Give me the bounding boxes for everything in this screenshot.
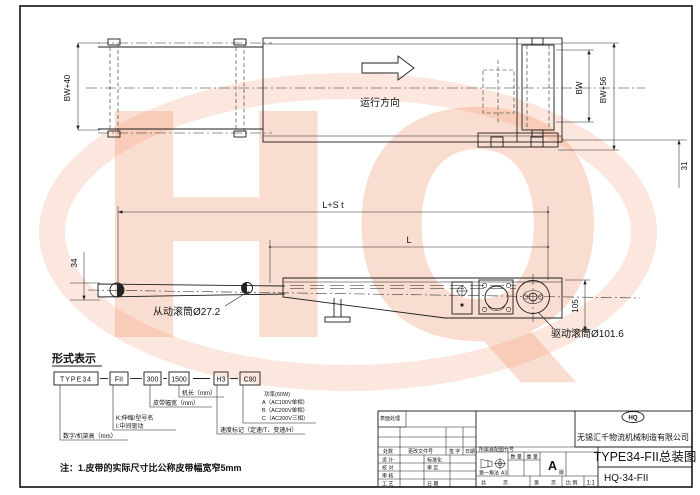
sig-row1-r: 审 定: [427, 465, 438, 472]
sig-row3-r: 日 期: [427, 482, 438, 488]
first-angle-projection-icon: [481, 458, 506, 469]
dim-label-bw56: BW+56: [599, 76, 608, 103]
sig-row0-r: 标准化: [427, 457, 442, 464]
sig-row2-l: 审 核: [382, 473, 393, 480]
header-col-1: 更改文件号: [408, 448, 433, 455]
scale-label: 比 例: [566, 480, 577, 487]
label-power-a: A（AC100V单相）: [262, 398, 308, 406]
hq-watermark: HQ: [52, 50, 644, 411]
type-box-5: C90: [244, 377, 257, 384]
revision-letter: A: [548, 459, 557, 473]
sig-row1-l: 校 对: [382, 465, 393, 472]
label-power: 功率(60W): [264, 390, 290, 398]
header-col-3: 日期: [465, 449, 475, 455]
header-col-0: 处数: [383, 448, 393, 455]
type-heading: 形式表示: [52, 351, 96, 365]
note-text: 注：1.皮带的实际尺寸比公称皮带幅宽窄5mm: [60, 462, 242, 473]
header-col-2: 签 字: [449, 448, 460, 455]
drawing-number: HQ-34-FII: [604, 473, 648, 484]
dim-label-31: 31: [680, 161, 689, 170]
type-box-3: 1500: [171, 377, 187, 384]
label-frame-height: 数字/机架高（mm）: [63, 432, 117, 440]
projection-label: 第一角法: [479, 470, 499, 477]
sheet-size-label: A3: [501, 471, 507, 477]
dim-label-105: 105: [571, 299, 580, 313]
drawing-title: TYPE34-FII总装图: [594, 450, 697, 464]
company-logo-icon: HQ: [622, 412, 644, 423]
type-box-1: FII: [115, 377, 123, 384]
driven-roller-label: 从动滚筒Ø27.2: [153, 305, 221, 318]
quantity-label: 数 量: [511, 454, 522, 461]
watermark-text: HQ: [87, 50, 610, 411]
label-belt-width: 皮带幅宽（mm）: [153, 399, 199, 407]
drive-roller-label: 驱动滚筒Ø101.6: [551, 327, 624, 340]
label-power-c: C（AC200V三相）: [262, 414, 308, 422]
total-label: 共: [481, 480, 486, 487]
sig-row3-l: 工 艺: [382, 482, 393, 488]
label-k-option: K:伸缩/型号名: [116, 414, 153, 422]
dim-label-bw: BW: [575, 81, 584, 94]
type-box-4: H3: [217, 377, 226, 384]
cad-drawing: HQ: [0, 0, 700, 495]
dim-label-34: 34: [70, 258, 79, 267]
label-i-option: I:中间驱动: [116, 422, 143, 430]
dim-label-l: L: [406, 235, 411, 245]
type-box-2: 300: [147, 377, 159, 384]
page-label: 页: [503, 481, 508, 487]
logo-text: HQ: [629, 416, 638, 422]
page-label2: 页: [551, 481, 556, 487]
dim-label-bw40: BW+40: [63, 74, 72, 101]
label-speed-mark: 速度标记（定速/T、变速/H）: [220, 426, 297, 434]
sig-row0-l: 设 计: [382, 457, 393, 464]
direction-label: 运行方向: [360, 96, 400, 109]
revision-suffix: 版: [559, 469, 564, 476]
belongs-code-label: 所属装配图代号: [479, 446, 514, 453]
weight-label: 重 量: [527, 454, 538, 461]
no-label: 第: [534, 480, 539, 487]
label-machine-length: 机长（mm）: [182, 389, 216, 397]
dim-label-lst: L+S t: [322, 200, 344, 210]
type-box-0: TYPE34: [60, 377, 92, 384]
drawing-sheet: HQ: [0, 0, 700, 495]
scale-value: 1:1: [587, 481, 596, 487]
label-power-b: B（AC200V单相）: [262, 406, 308, 414]
company-name: 无锡汇千物流机械制造有限公司: [577, 432, 689, 442]
title-block: 表面处理 处数 更改文件号 签 字 日期 设 计 标准化 校 对 审 定 审 核…: [378, 411, 696, 488]
surface-treatment-label: 表面处理: [380, 415, 400, 422]
